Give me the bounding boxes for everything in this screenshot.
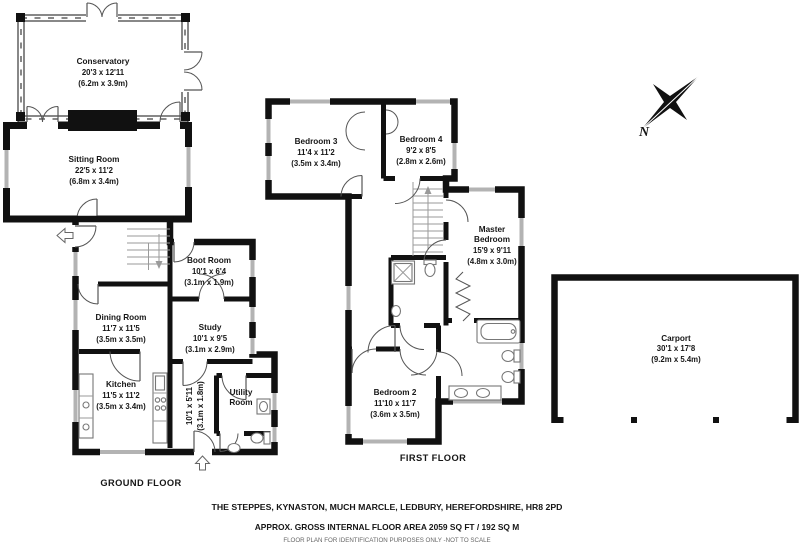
toilet-icon	[425, 264, 435, 277]
property-address: THE STEPPES, KYNASTON, MUCH MARCLE, LEDB…	[212, 502, 563, 512]
wall-post	[16, 112, 25, 121]
room-label: Boot Room	[187, 256, 231, 265]
room-dims-ft: 11'7 x 11'5	[102, 324, 140, 333]
window	[251, 338, 255, 354]
room-dims-ft: 30'1 x 17'8	[657, 344, 696, 353]
ground-floor-caption: GROUND FLOOR	[100, 478, 181, 488]
title-block: THE STEPPES, KYNASTON, MUCH MARCLE, LEDB…	[212, 502, 563, 544]
compass-highlight	[642, 76, 699, 129]
room-label: Study	[199, 323, 222, 332]
window	[100, 450, 145, 454]
door-opening	[174, 238, 194, 246]
room-dims-m: (3.5m x 3.4m)	[96, 402, 146, 411]
window	[74, 252, 78, 276]
window	[5, 150, 9, 188]
sink-icon	[477, 389, 490, 398]
room-label: Sitting Room	[69, 155, 120, 164]
hall-dims-ft: 10'1 x 5'11	[185, 386, 194, 425]
room-label: Bedroom 4	[400, 135, 443, 144]
window	[416, 100, 450, 104]
toilet-icon	[502, 351, 514, 362]
carport-post	[631, 417, 637, 423]
room-conservatory: Conservatory 20'3 x 12'11 (6.2m x 3.9m)	[16, 3, 202, 122]
toilet-cistern-icon	[514, 350, 520, 362]
sink-icon	[83, 424, 89, 430]
room-dims-m: (3.1m x 1.9m)	[184, 278, 234, 287]
room-label: Bedroom 3	[295, 137, 338, 146]
north-label: N	[638, 125, 650, 140]
bidet-icon	[502, 372, 514, 383]
room-dims-ft: 9'2 x 8'5	[406, 146, 436, 155]
first-floor-plan: Bedroom 3 11'4 x 11'2 (3.5m x 3.4m) Bedr…	[264, 97, 526, 463]
floor-plan-page: Conservatory 20'3 x 12'11 (6.2m x 3.9m) …	[0, 0, 800, 556]
room-dims-m: (2.8m x 2.6m)	[396, 157, 446, 166]
sink-icon	[156, 376, 165, 390]
disclaimer-note: FLOOR PLAN FOR IDENTIFICATION PURPOSES O…	[283, 537, 490, 544]
room-dims-m: (3.5m x 3.4m)	[291, 159, 341, 168]
window	[347, 406, 351, 434]
sink-icon	[455, 389, 468, 398]
tap-icon	[511, 330, 515, 334]
rear-door-opening	[194, 448, 212, 456]
ground-floor-lower-block: Boot Room 10'1 x 6'4 (3.1m x 1.9m) Dinin…	[57, 219, 279, 470]
fireplace	[68, 110, 137, 131]
window	[347, 286, 351, 310]
window	[251, 307, 255, 322]
floor-area-note: APPROX. GROSS INTERNAL FLOOR AREA 2059 S…	[255, 522, 520, 532]
window	[273, 427, 277, 442]
room-label: Conservatory	[77, 57, 130, 66]
room-dims-m: (3.5m x 3.5m)	[96, 335, 146, 344]
room-dims-m: (3.6m x 3.5m)	[370, 410, 420, 419]
wall-post	[16, 13, 25, 22]
room-dims-ft: 10'1 x 9'5	[193, 334, 228, 343]
basin-icon	[392, 306, 401, 317]
room-label: Bedroom	[474, 235, 510, 244]
room-dims-ft: 20'3 x 12'11	[82, 68, 125, 77]
room-dims-ft: 15'9 x 9'11	[473, 246, 512, 255]
ground-floor-plan: Conservatory 20'3 x 12'11 (6.2m x 3.9m) …	[2, 3, 279, 488]
toilet-cistern-icon	[264, 432, 270, 444]
sink-bowl-icon	[260, 402, 268, 412]
window	[453, 143, 457, 169]
compass-rose-icon: N	[638, 76, 699, 140]
room-label: Utility	[230, 388, 253, 397]
window	[267, 156, 271, 180]
wall-post	[181, 112, 190, 121]
entrance-arrow-icon	[196, 456, 210, 470]
room-label: Carport	[661, 334, 691, 343]
hob-icon	[161, 406, 165, 410]
wall-post	[181, 13, 190, 22]
room-label: Dining Room	[96, 313, 147, 322]
carport-post	[713, 417, 719, 423]
window	[273, 393, 277, 410]
room-dims-ft: 10'1 x 6'4	[192, 267, 227, 276]
bidet-back-icon	[514, 371, 520, 383]
window	[74, 390, 78, 422]
window	[363, 440, 407, 444]
room-label: Kitchen	[106, 380, 136, 389]
window	[267, 119, 271, 143]
door-opening	[179, 50, 192, 92]
room-dims-m: (6.8m x 3.4m)	[69, 177, 119, 186]
room-dims-m: (3.1m x 2.9m)	[185, 345, 235, 354]
toilet-icon	[251, 433, 263, 443]
window	[290, 100, 330, 104]
wall-return	[552, 417, 564, 423]
room-label: Bedroom 2	[374, 388, 417, 397]
hob-icon	[161, 398, 165, 402]
window	[251, 260, 255, 277]
room-dims-m: (9.2m x 5.4m)	[651, 355, 701, 364]
room-dims-ft: 22'5 x 11'2	[75, 166, 114, 175]
hob-icon	[155, 406, 159, 410]
room-label: Master	[479, 225, 506, 234]
door-opening	[86, 11, 118, 24]
room-dims-m: (4.8m x 3.0m)	[467, 257, 517, 266]
entrance-arrow-icon	[57, 229, 73, 243]
wall-return	[787, 417, 799, 423]
carport-plan: Carport 30'1 x 17'8 (9.2m x 5.4m)	[552, 278, 799, 424]
sink-icon	[83, 402, 89, 408]
door-opening	[160, 121, 180, 130]
window	[74, 300, 78, 330]
floor-plan-canvas: Conservatory 20'3 x 12'11 (6.2m x 3.9m) …	[0, 0, 800, 556]
room-dims-ft: 11'10 x 11'7	[374, 399, 416, 408]
window	[469, 188, 495, 192]
first-floor-caption: FIRST FLOOR	[400, 453, 466, 463]
room-dims-ft: 11'5 x 11'2	[102, 391, 140, 400]
window	[520, 218, 524, 246]
room-dims-m: (6.2m x 3.9m)	[78, 79, 128, 88]
basin-icon	[228, 444, 240, 453]
room-dims-ft: 11'4 x 11'2	[297, 148, 335, 157]
room-label: Room	[229, 398, 252, 407]
window	[187, 147, 191, 187]
hall-dims-m: (3.1m x 1.8m)	[196, 381, 205, 431]
hob-icon	[155, 398, 159, 402]
